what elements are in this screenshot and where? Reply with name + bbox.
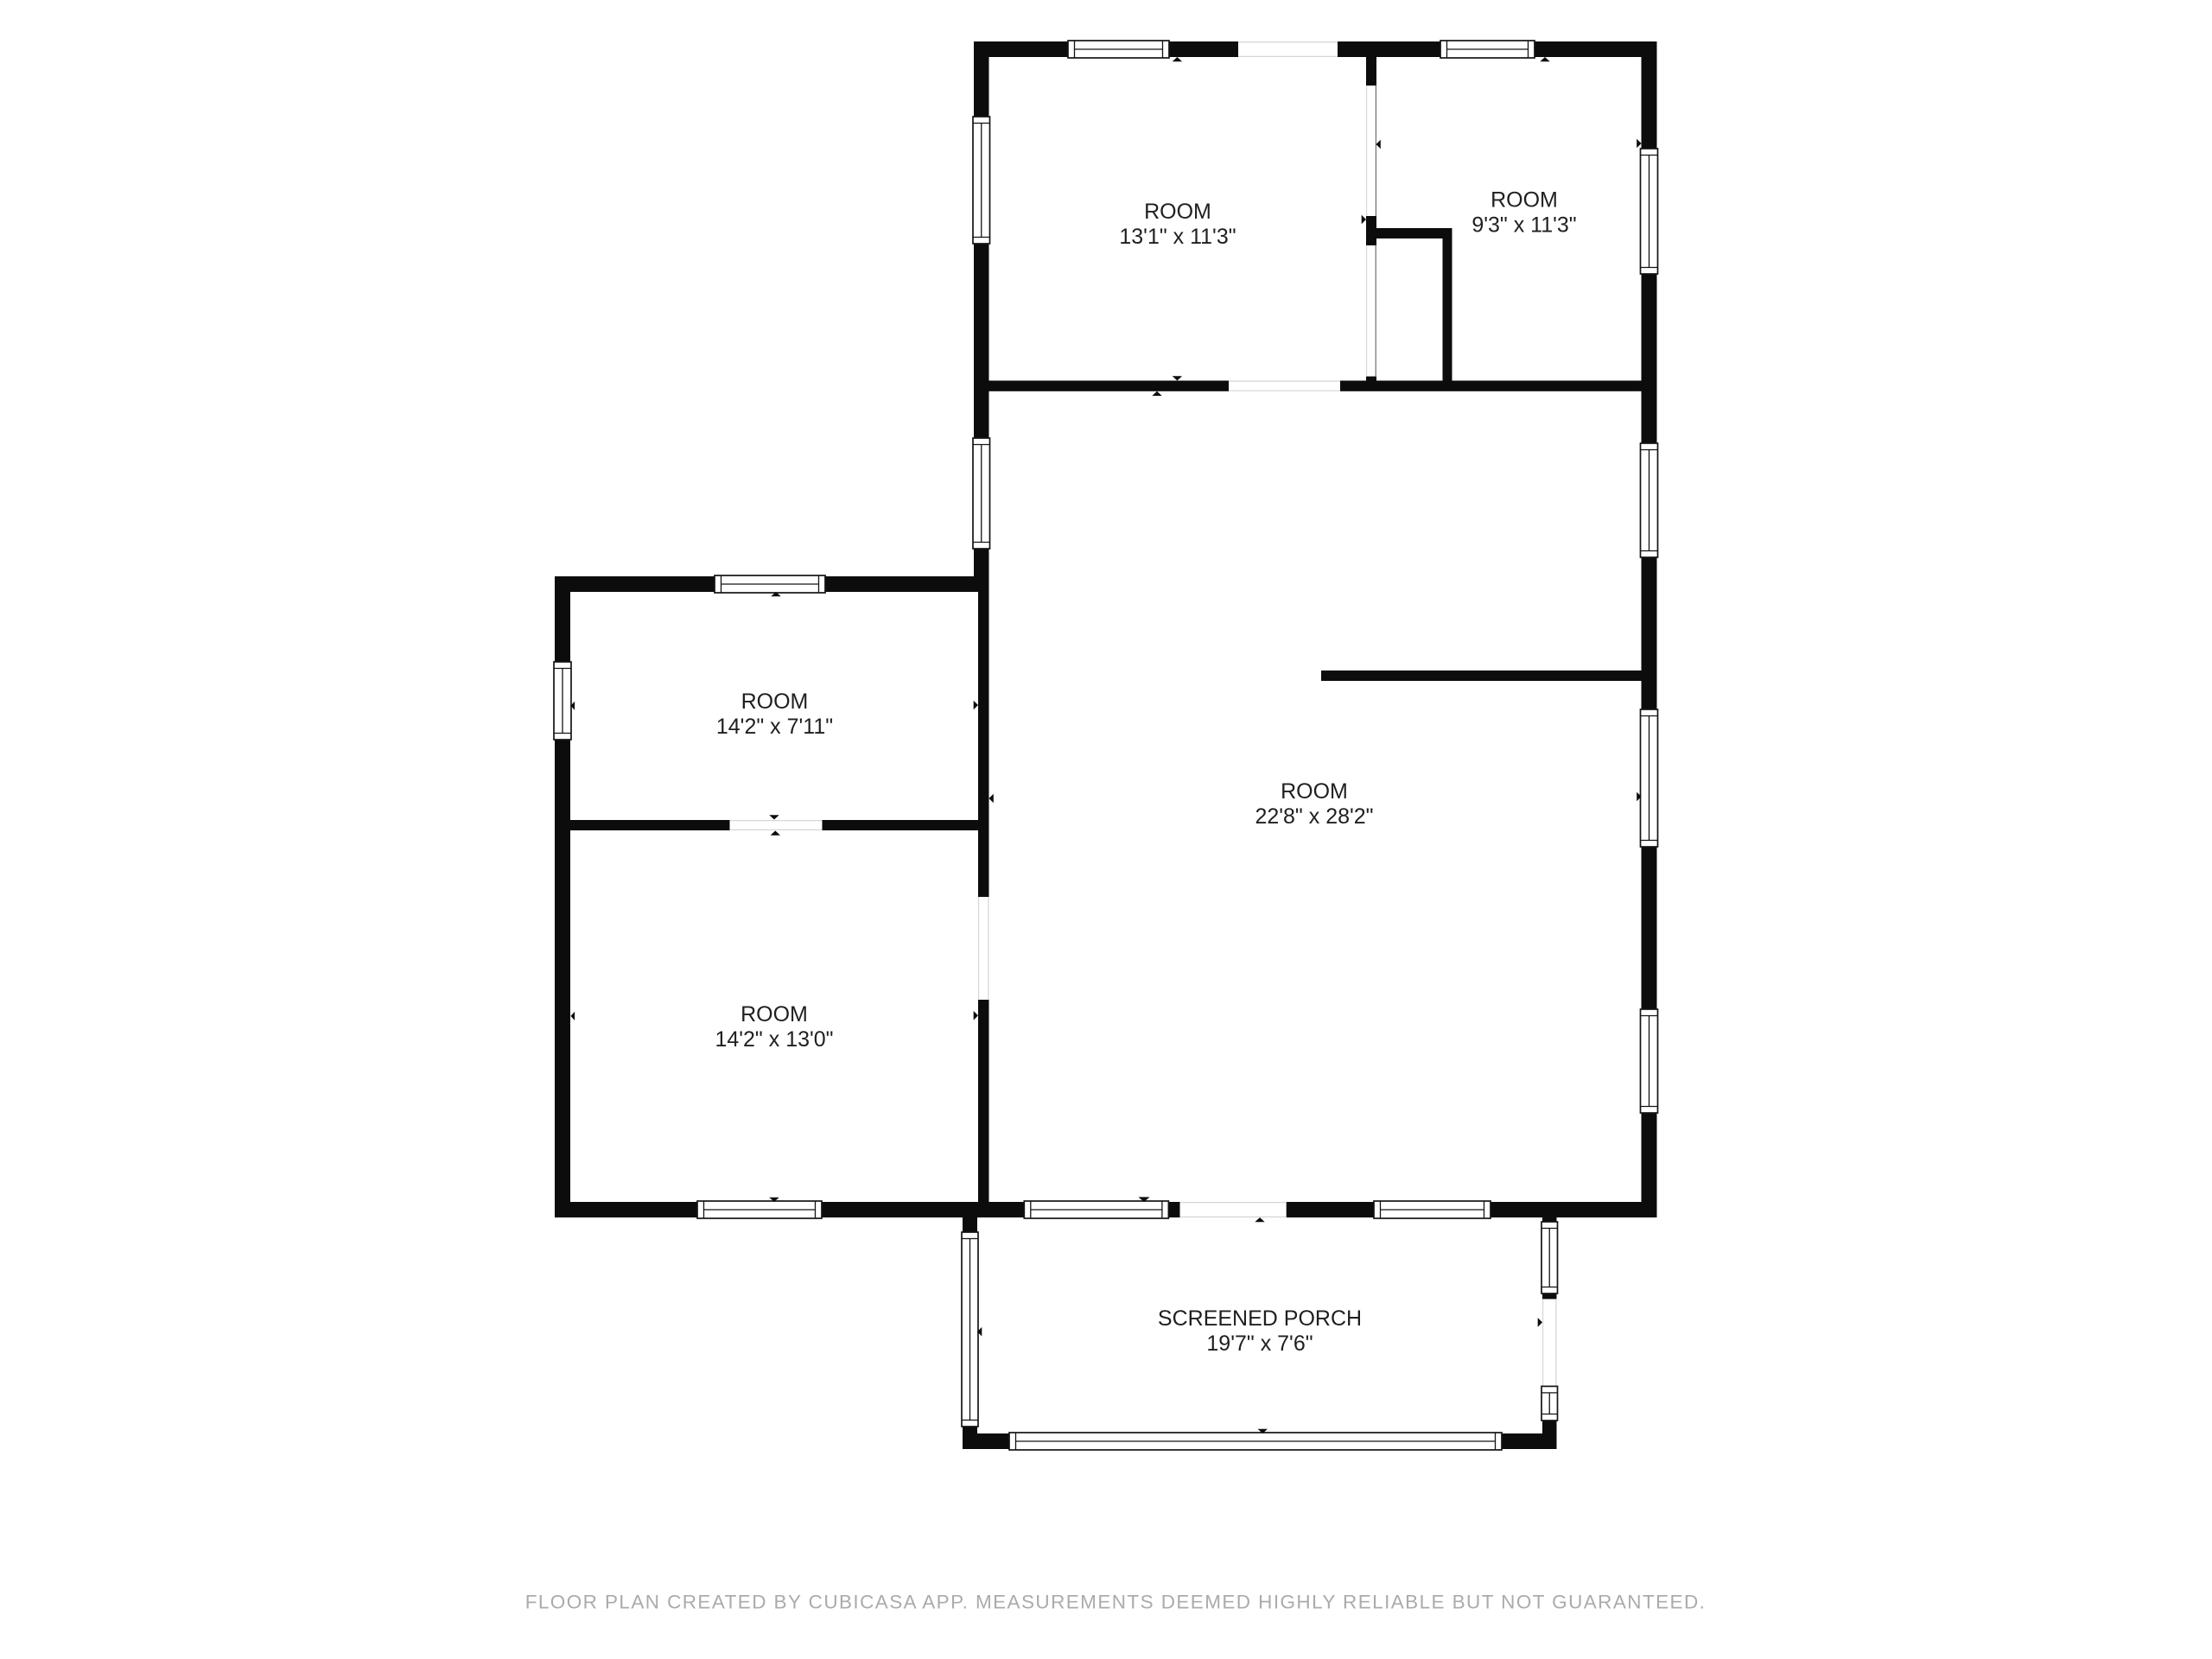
svg-text:22'8" x 28'2": 22'8" x 28'2" [1255, 804, 1373, 829]
svg-text:13'1" x 11'3": 13'1" x 11'3" [1119, 225, 1236, 249]
svg-text:14'2" x 13'0": 14'2" x 13'0" [715, 1027, 833, 1052]
svg-text:ROOM: ROOM [1281, 779, 1348, 804]
svg-text:14'2" x 7'11": 14'2" x 7'11" [716, 715, 833, 739]
svg-text:ROOM: ROOM [1491, 188, 1558, 212]
svg-text:9'3" x 11'3": 9'3" x 11'3" [1471, 213, 1576, 237]
svg-text:ROOM: ROOM [741, 1002, 808, 1027]
svg-text:ROOM: ROOM [1144, 200, 1211, 224]
svg-text:FLOOR PLAN CREATED BY CUBICASA: FLOOR PLAN CREATED BY CUBICASA APP. MEAS… [525, 1592, 1707, 1613]
svg-text:SCREENED PORCH: SCREENED PORCH [1158, 1306, 1362, 1331]
svg-text:19'7" x 7'6": 19'7" x 7'6" [1206, 1332, 1313, 1356]
svg-text:ROOM: ROOM [741, 690, 809, 714]
